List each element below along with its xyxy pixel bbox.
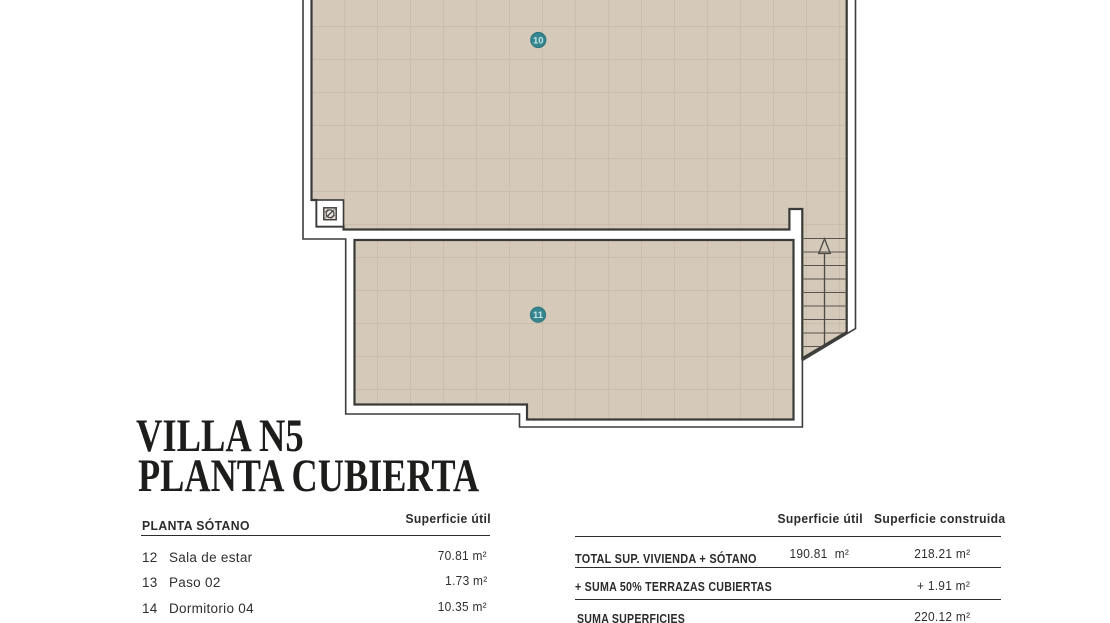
svg-text:10: 10 xyxy=(533,35,544,46)
svg-text:11: 11 xyxy=(533,310,544,321)
